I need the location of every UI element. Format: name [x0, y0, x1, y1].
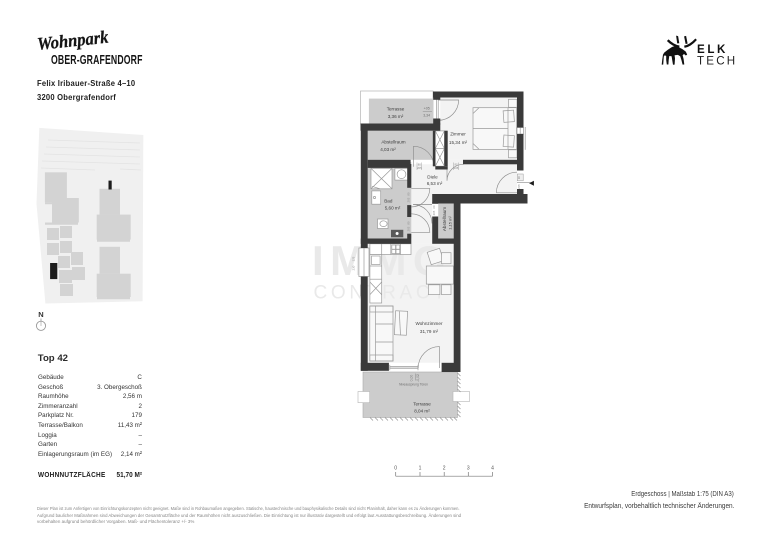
svg-text:Niveausprung Türen: Niveausprung Türen — [399, 383, 428, 387]
svg-text:60: 60 — [432, 205, 436, 209]
svg-text:0: 0 — [394, 466, 397, 472]
svg-text:Zimmer: Zimmer — [450, 132, 466, 137]
svg-text:2: 2 — [443, 466, 446, 472]
svg-text:N: N — [38, 310, 43, 319]
svg-text:Abstellraum: Abstellraum — [442, 207, 447, 231]
svg-text:80: 80 — [406, 192, 410, 196]
svg-text:80: 80 — [406, 221, 410, 225]
svg-text:Bad: Bad — [384, 199, 393, 204]
svg-text:230: 230 — [352, 265, 356, 270]
svg-text:205: 205 — [432, 210, 436, 215]
svg-text:205: 205 — [406, 197, 410, 202]
svg-text:205: 205 — [406, 226, 410, 231]
svg-text:1: 1 — [419, 466, 422, 472]
svg-text:8,04 m²: 8,04 m² — [414, 409, 430, 414]
svg-text:+05: +05 — [424, 107, 430, 111]
svg-text:5,60 m²: 5,60 m² — [385, 205, 401, 210]
svg-text:Abstellraum: Abstellraum — [381, 140, 405, 145]
svg-text:-0,02: -0,02 — [416, 374, 420, 382]
svg-text:TECH: TECH — [697, 55, 737, 68]
svg-text:3,34: 3,34 — [423, 114, 430, 118]
svg-text:15,34 m²: 15,34 m² — [449, 140, 468, 145]
svg-text:4,03 m²: 4,03 m² — [380, 147, 396, 152]
svg-text:0,00: 0,00 — [410, 375, 414, 382]
svg-text:1,15 m²: 1,15 m² — [448, 216, 453, 230]
svg-text:4: 4 — [491, 466, 494, 472]
svg-text:Terrasse: Terrasse — [413, 402, 431, 407]
svg-text:3,36 m²: 3,36 m² — [388, 114, 404, 119]
svg-text:31,79 m²: 31,79 m² — [420, 329, 439, 334]
svg-text:205: 205 — [417, 166, 422, 170]
svg-text:Diele: Diele — [427, 175, 438, 180]
svg-text:Wohnpark: Wohnpark — [36, 28, 109, 54]
svg-text:3: 3 — [467, 466, 470, 472]
svg-text:Terrasse: Terrasse — [387, 107, 405, 112]
svg-text:205: 205 — [454, 166, 459, 170]
svg-text:6,53 m²: 6,53 m² — [427, 181, 443, 186]
svg-text:90: 90 — [517, 176, 521, 180]
svg-text:205: 205 — [517, 184, 521, 189]
svg-text:175: 175 — [352, 256, 356, 261]
svg-text:Wohnzimmer: Wohnzimmer — [416, 321, 443, 326]
